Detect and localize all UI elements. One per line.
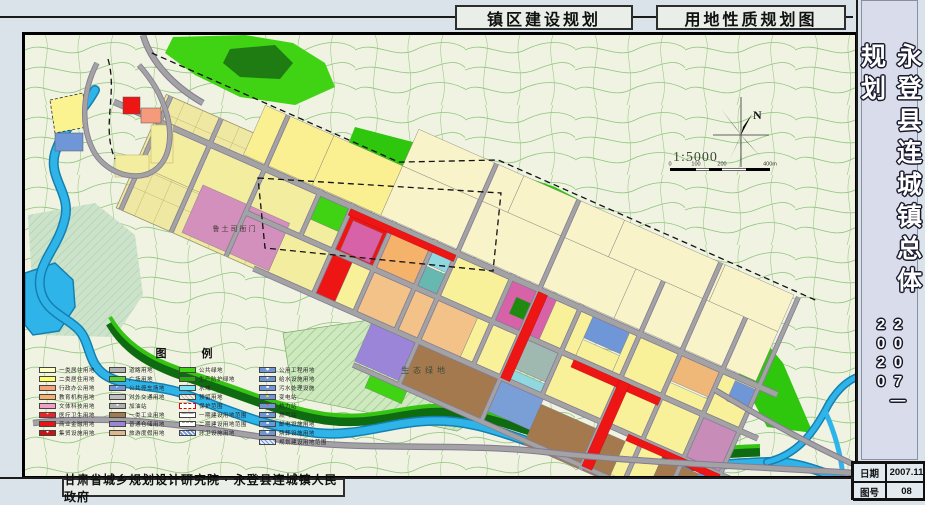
- legend-label: 一类居住用地: [59, 365, 95, 373]
- legend-column-3: 公共绿地生产防护绿地水域预留用地保护范围—·—一期建设用地范围– – –二期建设…: [179, 365, 251, 437]
- legend-swatch: [109, 421, 126, 427]
- plan-period-vertical: 2007—2020: [873, 316, 907, 459]
- legend-item: ▲燃气站: [259, 410, 331, 419]
- legend-label: 行政办公用地: [59, 383, 95, 391]
- sidebar-title-strip: 永登县连城镇总体规划 2007—2020: [861, 0, 918, 460]
- legend-swatch: ●: [259, 376, 276, 382]
- legend-swatch: – – –: [179, 421, 196, 427]
- legend-swatch: ●: [259, 403, 276, 409]
- legend-label: 环卫设施用地: [199, 428, 235, 436]
- legend-item: 水域: [179, 383, 251, 392]
- legend-swatch: +: [39, 412, 56, 418]
- legend-swatch: [259, 439, 276, 445]
- sheet-title-right-text: 用地性质规划图: [684, 6, 817, 30]
- legend-swatch: [179, 430, 196, 436]
- scale-tick: 0: [668, 162, 671, 168]
- legend-column-4: ◆公用工程用地●给水设施用地■污水处理设施▲变电站●热力站▲燃气站■邮电设施用地…: [259, 365, 331, 446]
- legend-swatch: ◆: [259, 430, 276, 436]
- credit-text: 甘肃省城乡规划设计研究院 · 永登县连城镇人民政府: [64, 471, 343, 505]
- legend-swatch: [179, 376, 196, 382]
- tusi-site-label: 鲁土司衙门: [213, 224, 258, 233]
- legend-item: 预留用地: [179, 392, 251, 401]
- legend-swatch: ■: [259, 385, 276, 391]
- legend-label: 公共停车场地: [129, 383, 165, 391]
- legend-label: 规划建设用地范围: [279, 437, 327, 445]
- legend-item: 公共绿地: [179, 365, 251, 374]
- legend-label: 污水处理设施: [279, 383, 315, 391]
- legend-label: 普通仓储用地: [129, 419, 165, 427]
- legend-item: P公共停车场地: [109, 383, 168, 392]
- legend-label: 燃气站: [279, 410, 297, 418]
- legend-column-2: 道路用地广场用地P公共停车场地对外交通用地●加油站一类工业用地普通仓储用地旅游度…: [109, 365, 168, 437]
- legend-item: 二类居住用地: [39, 374, 98, 383]
- legend-label: 集贸设施用地: [59, 428, 95, 436]
- sheet-title-right: 用地性质规划图: [656, 5, 846, 30]
- legend-label: 旅游度假用地: [129, 428, 165, 436]
- legend-label: 保护范围: [199, 401, 223, 409]
- legend-label: 对外交通用地: [129, 392, 165, 400]
- legend-label: 加油站: [129, 401, 147, 409]
- legend-swatch: [109, 376, 126, 382]
- legend-item: 对外交通用地: [109, 392, 168, 401]
- legend-label: 道路用地: [129, 365, 153, 373]
- legend-label: 公共绿地: [199, 365, 223, 373]
- legend-item: ■污水处理设施: [259, 383, 331, 392]
- legend-label: 文体科技用地: [59, 401, 95, 409]
- legend-item: ●热力站: [259, 401, 331, 410]
- legend-item: – – –二期建设用地范围: [179, 419, 251, 428]
- legend-item: 商业金融用地: [39, 419, 98, 428]
- date-value: 2007.11: [886, 463, 925, 482]
- legend-label: 生产防护绿地: [199, 374, 235, 382]
- legend-label: 公用工程用地: [279, 365, 315, 373]
- legend-swatch: ■: [259, 421, 276, 427]
- legend-label: 教育机构用地: [59, 392, 95, 400]
- date-label: 日期: [853, 463, 886, 482]
- legend: 图 例 一类居住用地二类居住用地行政办公用地教育机构用地文体科技用地+医疗卫生用…: [33, 345, 335, 473]
- legend-label: 邮电设施用地: [279, 419, 315, 427]
- legend-item: ●加油站: [109, 401, 168, 410]
- legend-label: 医疗卫生用地: [59, 410, 95, 418]
- legend-swatch: [109, 367, 126, 373]
- legend-label: 一类工业用地: [129, 410, 165, 418]
- legend-swatch: —·—: [179, 412, 196, 418]
- legend-swatch: [39, 421, 56, 427]
- legend-item: 一类工业用地: [109, 410, 168, 419]
- sheet-no-label: 图号: [853, 482, 886, 501]
- legend-swatch: [179, 394, 196, 400]
- legend-title: 图 例: [33, 345, 335, 361]
- legend-label: 一期建设用地范围: [199, 410, 247, 418]
- legend-swatch: [39, 376, 56, 382]
- legend-label: 二类居住用地: [59, 374, 95, 382]
- scale-tick: 200: [717, 162, 726, 168]
- legend-item: 一类居住用地: [39, 365, 98, 374]
- legend-item: 文体科技用地: [39, 401, 98, 410]
- north-label: N: [753, 108, 762, 122]
- map-canvas: N 1:5000 0100200400m 鲁土司衙门 生态绿地 图 例 一类居住…: [22, 32, 858, 479]
- sheet-no-value: 08: [886, 482, 925, 501]
- legend-item: 环卫设施用地: [179, 428, 251, 437]
- legend-column-1: 一类居住用地二类居住用地行政办公用地教育机构用地文体科技用地+医疗卫生用地商业金…: [39, 365, 98, 437]
- legend-label: 水域: [199, 383, 211, 391]
- legend-label: 热力站: [279, 401, 297, 409]
- legend-label: 给水设施用地: [279, 374, 315, 382]
- legend-swatch: ●: [109, 403, 126, 409]
- legend-swatch: ◆: [259, 367, 276, 373]
- legend-item: 普通仓储用地: [109, 419, 168, 428]
- sheet-title-left: 镇区建设规划: [455, 5, 633, 30]
- legend-label: 二期建设用地范围: [199, 419, 247, 427]
- legend-swatch: [39, 394, 56, 400]
- legend-item: ●给水设施用地: [259, 374, 331, 383]
- legend-swatch: ▲: [259, 394, 276, 400]
- legend-swatch: ●: [39, 430, 56, 436]
- credit-bar: 甘肃省城乡规划设计研究院 · 永登县连城镇人民政府: [62, 478, 345, 497]
- legend-item: 生产防护绿地: [179, 374, 251, 383]
- scale-tick: 100: [691, 162, 700, 168]
- legend-swatch: [39, 403, 56, 409]
- legend-swatch: [179, 385, 196, 391]
- legend-item: —·—一期建设用地范围: [179, 410, 251, 419]
- legend-item: +医疗卫生用地: [39, 410, 98, 419]
- legend-label: 广场用地: [129, 374, 153, 382]
- legend-item: 保护范围: [179, 401, 251, 410]
- legend-swatch: ▲: [259, 412, 276, 418]
- legend-item: 行政办公用地: [39, 383, 98, 392]
- legend-label: 变电站: [279, 392, 297, 400]
- eco-green-label: 生态绿地: [401, 365, 449, 375]
- legend-item: 规划建设用地范围: [259, 437, 331, 446]
- legend-item: ■邮电设施用地: [259, 419, 331, 428]
- sheet-title-left-text: 镇区建设规划: [487, 6, 601, 30]
- legend-item: 教育机构用地: [39, 392, 98, 401]
- legend-item: 旅游度假用地: [109, 428, 168, 437]
- legend-swatch: [109, 412, 126, 418]
- legend-label: 商业金融用地: [59, 419, 95, 427]
- legend-item: 广场用地: [109, 374, 168, 383]
- legend-swatch: [109, 430, 126, 436]
- legend-swatch: [179, 403, 196, 409]
- title-block-table: 日期 2007.11 图号 08: [851, 461, 925, 500]
- legend-swatch: P: [109, 385, 126, 391]
- legend-label: 殡葬设施用地: [279, 428, 315, 436]
- legend-item: ●集贸设施用地: [39, 428, 98, 437]
- legend-label: 预留用地: [199, 392, 223, 400]
- plan-sheet: { "header": { "tab1": "镇区建设规划", "tab2": …: [0, 0, 925, 500]
- legend-item: 道路用地: [109, 365, 168, 374]
- legend-swatch: [179, 367, 196, 373]
- legend-swatch: [39, 367, 56, 373]
- legend-swatch: [109, 394, 126, 400]
- plan-title-vertical: 永登县连城镇总体规划: [854, 43, 925, 310]
- legend-item: ◆公用工程用地: [259, 365, 331, 374]
- scale-tick: 400m: [763, 162, 777, 168]
- legend-swatch: [39, 385, 56, 391]
- legend-item: ▲变电站: [259, 392, 331, 401]
- legend-item: ◆殡葬设施用地: [259, 428, 331, 437]
